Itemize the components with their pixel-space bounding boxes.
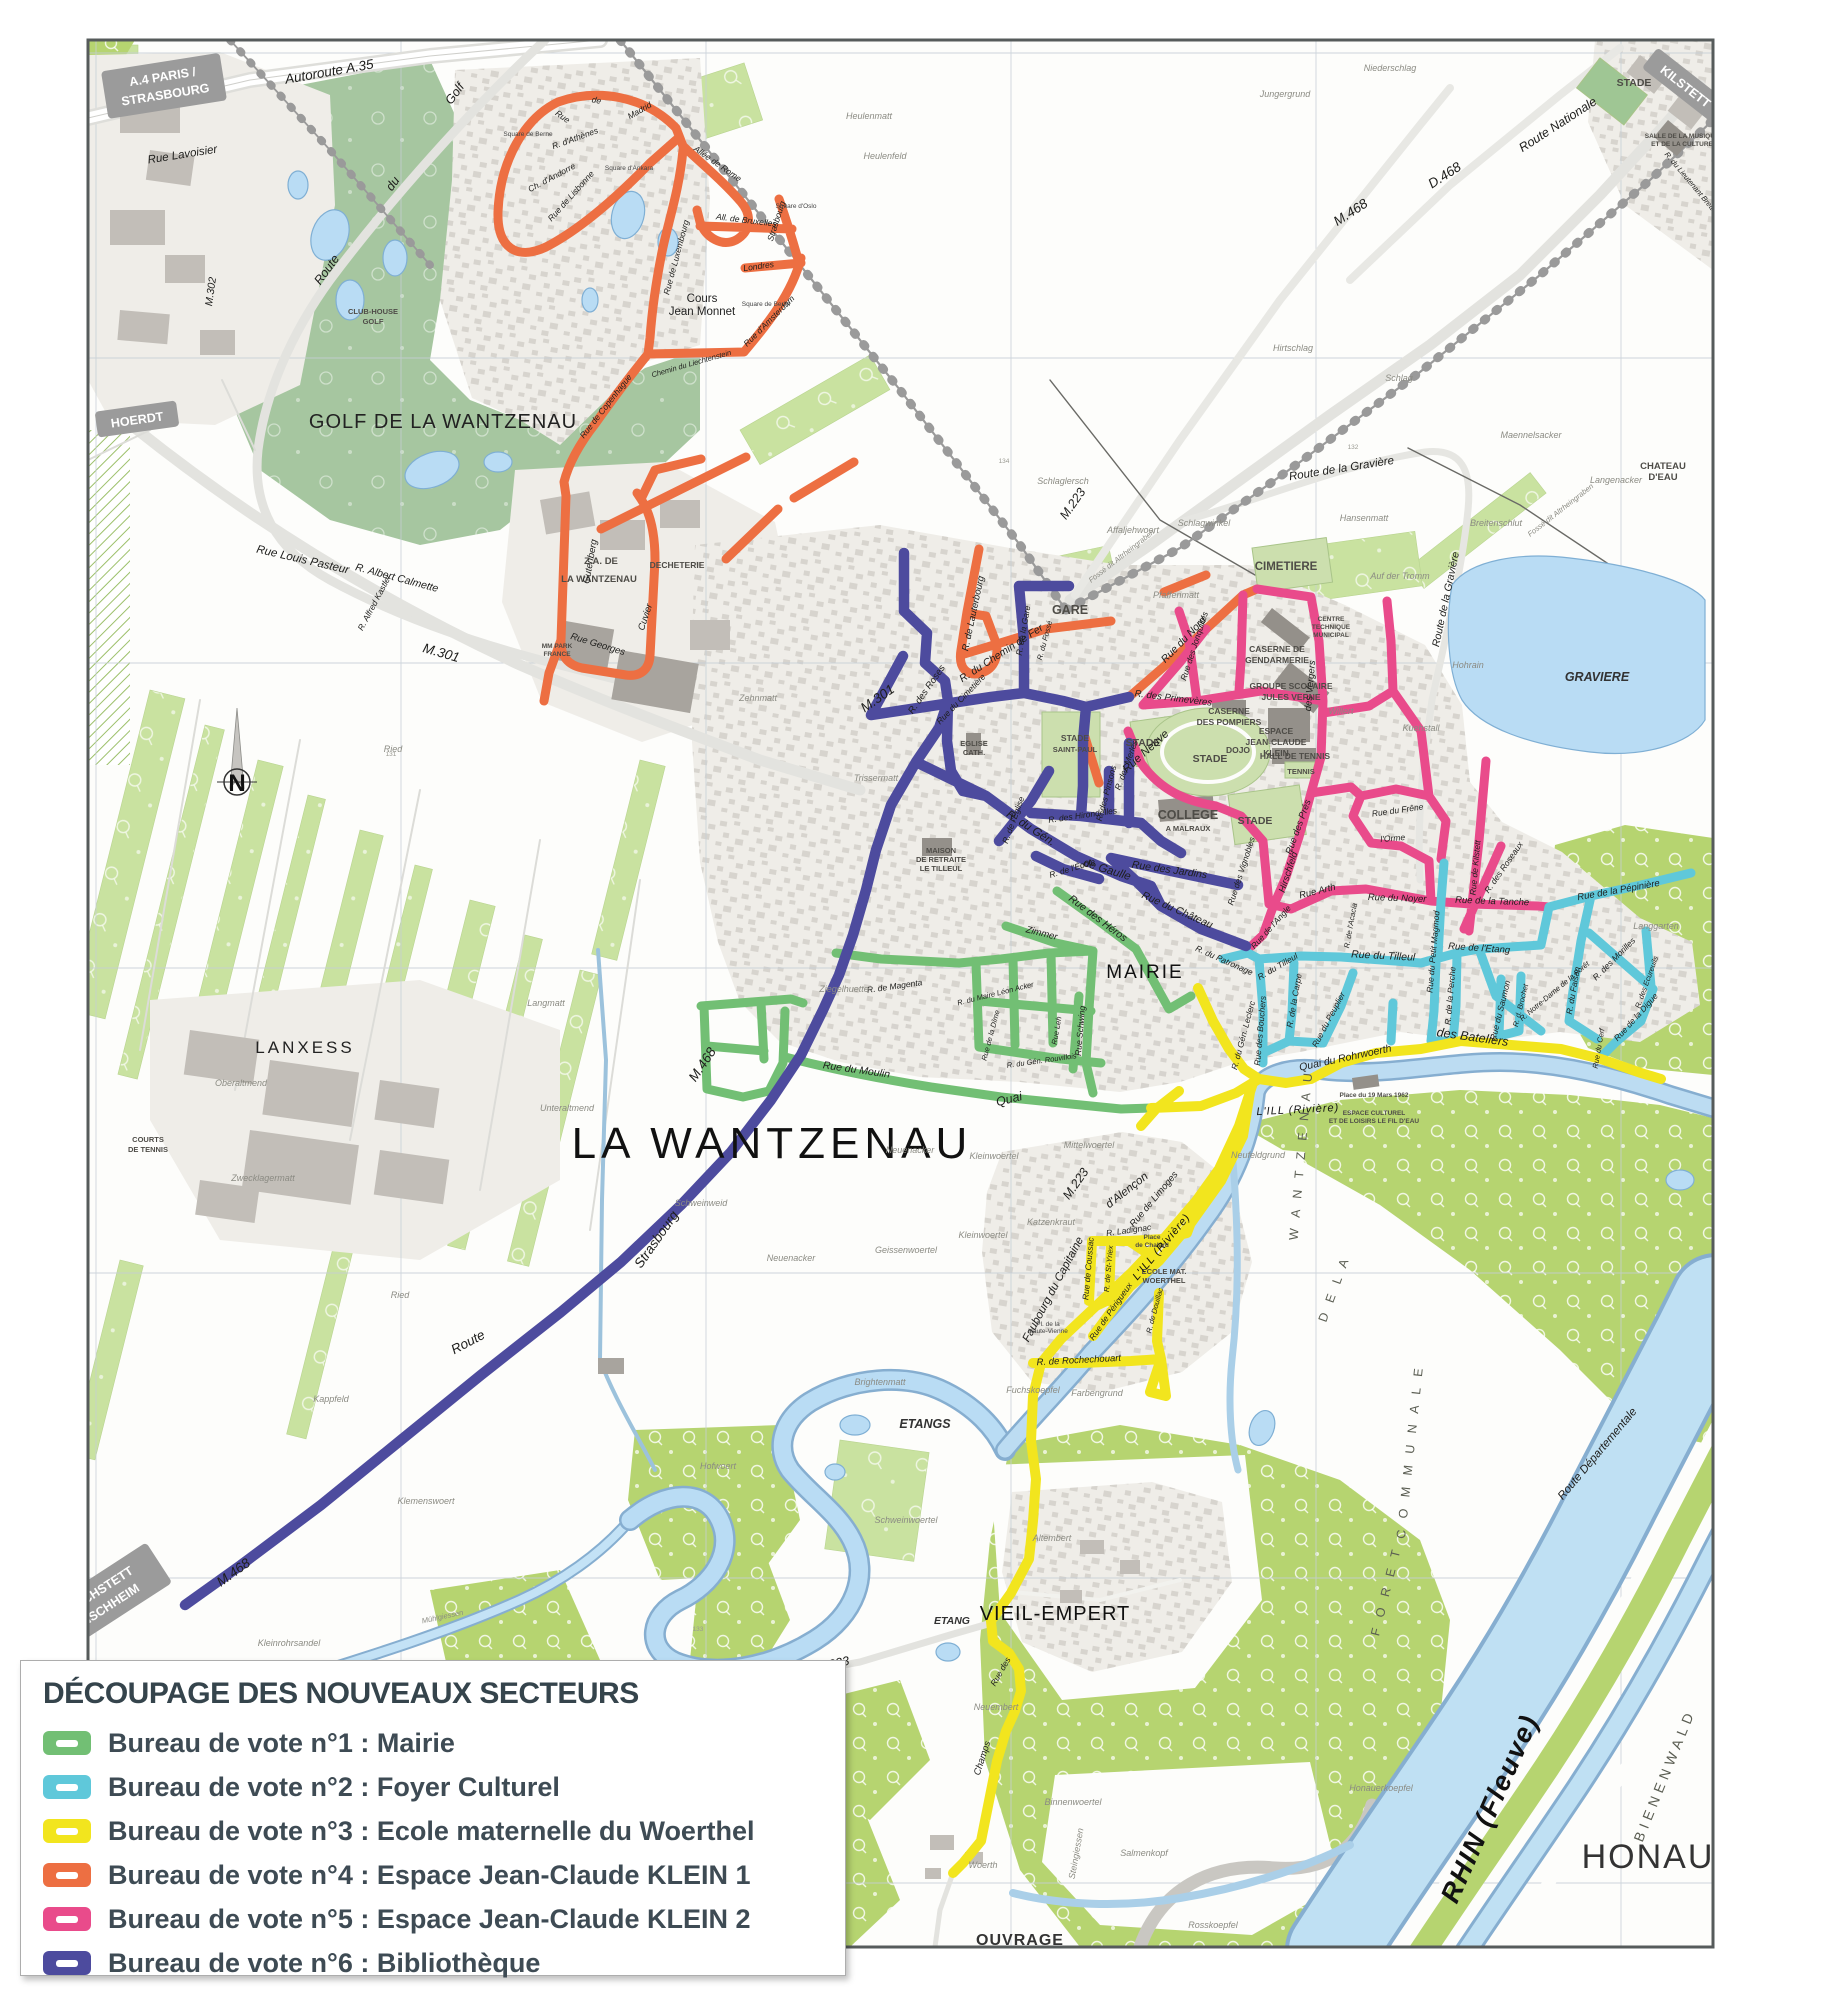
road-label: Rue du Noyer	[1368, 892, 1428, 905]
map-label: DES POMPIERS	[1197, 717, 1262, 727]
map-label: Square d'Oslo	[776, 203, 817, 210]
legend-item-label: Bureau de vote n°3 : Ecole maternelle du…	[108, 1816, 754, 1847]
field-label: Kuehstall	[1402, 723, 1440, 733]
left-edge-hatch	[88, 430, 130, 765]
map-label: ESPACE	[1259, 726, 1294, 736]
map-page: A.4 PARIS / STRASBOURG HOERDT KILSTETT R…	[0, 0, 1826, 2000]
field-label: Hohrain	[1452, 660, 1484, 670]
map-label: Square d'Ankara	[605, 165, 654, 172]
map-label: Square de Berlin	[742, 301, 791, 308]
field-label: Hansenmatt	[1340, 513, 1389, 523]
map-label: Cours	[687, 293, 718, 305]
field-label: Oberaltmend	[215, 1078, 268, 1088]
map-label: D'EAU	[1648, 472, 1677, 483]
elevation-label: 132	[1348, 444, 1359, 451]
field-label: Pfaffenmatt	[1153, 590, 1200, 600]
map-label: Langgarten	[1633, 921, 1679, 931]
map-label: MM PARK	[542, 643, 573, 650]
map-label: TECHNIQUE	[1312, 624, 1351, 631]
legend-item-6: Bureau de vote n°6 : Bibliothèque	[43, 1941, 823, 1985]
map-label: Place	[1144, 1234, 1161, 1241]
north-label: N	[228, 770, 245, 797]
field-label: Neuenacker	[767, 1253, 817, 1263]
map-label: HALL DE TENNIS	[1260, 751, 1331, 761]
field-label: Schweinwoertel	[874, 1515, 938, 1525]
map-label: GROUPE SCOLAIRE	[1249, 681, 1332, 691]
field-label: Maennelsacker	[1500, 430, 1562, 440]
field-label: Willert	[1329, 706, 1354, 716]
map-label: Place du 19 Mars 1962	[1339, 1092, 1408, 1099]
field-label: Hofwoert	[700, 1461, 737, 1471]
map-label: SALLE DE LA MUSIQUE	[1645, 133, 1720, 140]
map-label: COLLEGE	[1158, 808, 1218, 822]
legend-swatch-bar	[56, 1828, 78, 1835]
legend-item-label: Bureau de vote n°1 : Mairie	[108, 1728, 455, 1759]
map-label: HONAU	[1582, 1838, 1715, 1876]
field-label: Trissermatt	[854, 773, 899, 783]
road-label: de	[591, 94, 602, 106]
map-label: CASERNE	[1208, 706, 1250, 716]
field-label: Kleinwoertel	[958, 1230, 1008, 1240]
map-label: DOJO	[1226, 745, 1250, 755]
legend-swatch-bar	[56, 1740, 78, 1747]
legend-swatch-1	[43, 1731, 91, 1755]
field-label: Heulenmatt	[846, 111, 893, 121]
map-label: LA WANTZENAU	[561, 574, 637, 585]
map-label: ETANG	[934, 1615, 970, 1627]
legend-item-label: Bureau de vote n°2 : Foyer Culturel	[108, 1772, 560, 1803]
map-label: COURTS	[132, 1135, 164, 1144]
legend-item-2: Bureau de vote n°2 : Foyer Culturel	[43, 1765, 823, 1809]
map-label: CHATEAU	[1640, 461, 1686, 472]
legend-item-1: Bureau de vote n°1 : Mairie	[43, 1721, 823, 1765]
legend-item-4: Bureau de vote n°4 : Espace Jean-Claude …	[43, 1853, 823, 1897]
legend-swatch-4	[43, 1863, 91, 1887]
legend-swatch-5	[43, 1907, 91, 1931]
elevation-label: 134	[999, 458, 1010, 465]
map-label: CASERNE DE	[1249, 644, 1305, 654]
map-label: GOLF	[363, 317, 384, 326]
legend-item-5: Bureau de vote n°5 : Espace Jean-Claude …	[43, 1897, 823, 1941]
field-label: Mittelwoertel	[1064, 1140, 1116, 1150]
field-label: Schlagwinkel	[1178, 518, 1232, 528]
field-label: Ziegelhuette	[818, 984, 869, 994]
map-label: DE RETRAITE	[916, 855, 966, 864]
field-label: Neuenacker	[886, 1145, 936, 1155]
field-label: Kappfeld	[313, 1394, 350, 1404]
map-label: GARE	[1052, 603, 1088, 617]
map-label: GOLF DE LA WANTZENAU	[309, 411, 577, 433]
legend-swatch-bar	[56, 1784, 78, 1791]
map-label: DE TENNIS	[128, 1145, 168, 1154]
field-label: Brightenmatt	[854, 1377, 906, 1387]
town-title: LA WANTZENAU	[572, 1119, 973, 1168]
legend-swatch-bar	[56, 1872, 78, 1879]
field-label: Heulenfeld	[863, 151, 907, 161]
field-label: Schlag	[1385, 373, 1413, 383]
field-label: Zehnmatt	[738, 693, 778, 703]
map-label: VIEIL-EMPERT	[980, 1603, 1131, 1625]
field-label: Schlaglersch	[1037, 476, 1089, 486]
map-label: WOERTHEL	[1143, 1276, 1186, 1285]
map-label: CIMETIERE	[1255, 561, 1318, 573]
field-label: Zwecklagermatt	[230, 1173, 295, 1183]
field-label: Unteraltmend	[540, 1103, 595, 1113]
field-label: Langenacker	[1590, 475, 1643, 485]
map-label: SAINT-PAUL	[1053, 745, 1098, 754]
field-label: Honauerkoepfel	[1349, 1783, 1414, 1793]
field-label: Hirtschlag	[1273, 343, 1313, 353]
map-label: TENNIS	[1287, 767, 1315, 776]
field-label: Neufeldgrund	[1231, 1150, 1286, 1160]
map-label: EGLISE	[960, 739, 988, 748]
map-label: JEAN-CLAUDE	[1246, 737, 1307, 747]
legend-box: DÉCOUPAGE DES NOUVEAUX SECTEURS Bureau d…	[20, 1660, 846, 1976]
map-label: ESPACE CULTUREL	[1343, 1110, 1406, 1117]
field-label: Breitenschlut	[1470, 518, 1523, 528]
field-label: Fuchskoepfel	[1006, 1385, 1061, 1395]
legend-swatch-bar	[56, 1960, 78, 1967]
legend-item-label: Bureau de vote n°5 : Espace Jean-Claude …	[108, 1904, 751, 1935]
map-label: ET DE LA CULTURE	[1651, 141, 1713, 148]
map-label: DECHETERIE	[650, 560, 705, 570]
map-label: CENTRE	[1318, 616, 1345, 623]
legend-item-label: Bureau de vote n°6 : Bibliothèque	[108, 1948, 540, 1979]
map-label: CLUB-HOUSE	[348, 307, 398, 316]
map-label: LANXESS	[255, 1038, 354, 1057]
map-label: FRANCE	[543, 651, 571, 658]
map-label: A MALRAUX	[1166, 824, 1211, 833]
field-label: Neuembert	[974, 1702, 1019, 1712]
map-label: GRAVIERE	[1565, 670, 1630, 684]
field-label: Schweinweid	[675, 1198, 729, 1208]
field-label: Woerth	[968, 1860, 997, 1870]
field-label: Klemenswoert	[397, 1496, 455, 1506]
field-label: Kleinrohrsandel	[258, 1638, 322, 1648]
map-label: STADE	[1238, 815, 1273, 827]
field-label: Farbengrund	[1071, 1388, 1124, 1398]
field-label: Affaljehwoert	[1106, 525, 1160, 535]
field-label: Jungergrund	[1259, 89, 1312, 99]
map-label: ET DE LOISIRS LE FIL D'EAU	[1329, 1118, 1420, 1125]
legend-swatch-2	[43, 1775, 91, 1799]
map-label: GENDARMERIE	[1245, 655, 1309, 665]
field-label: Altembert	[1032, 1533, 1072, 1543]
map-label: Square de Berne	[503, 131, 553, 138]
map-label: MAISON	[926, 846, 956, 855]
field-label: Binnenwoertel	[1044, 1797, 1102, 1807]
map-label: ETANGS	[899, 1417, 951, 1431]
map-label: Jean Monnet	[669, 306, 736, 318]
map-label: STADE	[1617, 77, 1652, 89]
field-label: Niederschlag	[1364, 63, 1417, 73]
field-label: Kleinwoertel	[969, 1151, 1019, 1161]
map-label: Pl. de la	[1036, 1321, 1060, 1328]
legend-swatch-6	[43, 1951, 91, 1975]
field-label: Salmenkopf	[1120, 1848, 1169, 1858]
legend-item-label: Bureau de vote n°4 : Espace Jean-Claude …	[108, 1860, 751, 1891]
field-label: Rosskoepfel	[1188, 1920, 1239, 1930]
map-label: MAIRIE	[1106, 962, 1183, 983]
legend-swatch-3	[43, 1819, 91, 1843]
legend-item-3: Bureau de vote n°3 : Ecole maternelle du…	[43, 1809, 823, 1853]
elevation-label: 131	[386, 751, 397, 758]
field-label: Langmatt	[527, 998, 565, 1008]
field-label: Geissenwoertel	[875, 1245, 938, 1255]
legend-title: DÉCOUPAGE DES NOUVEAUX SECTEURS	[43, 1677, 823, 1711]
elevation-label: 133	[693, 1626, 704, 1633]
map-label: MUNICIPAL	[1313, 632, 1349, 639]
field-label: Katzenkraut	[1027, 1217, 1076, 1227]
map-label: CATH.	[963, 748, 985, 757]
map-label: LE TILLEUL	[920, 864, 963, 873]
field-label: Auf der Tromm	[1369, 571, 1430, 581]
legend-swatch-bar	[56, 1916, 78, 1923]
map-label: STADE	[1193, 753, 1228, 765]
map-label: STADE	[1061, 733, 1090, 743]
field-label: Ried	[391, 1290, 411, 1300]
map-label: Haute-Vienne	[1028, 1328, 1068, 1335]
